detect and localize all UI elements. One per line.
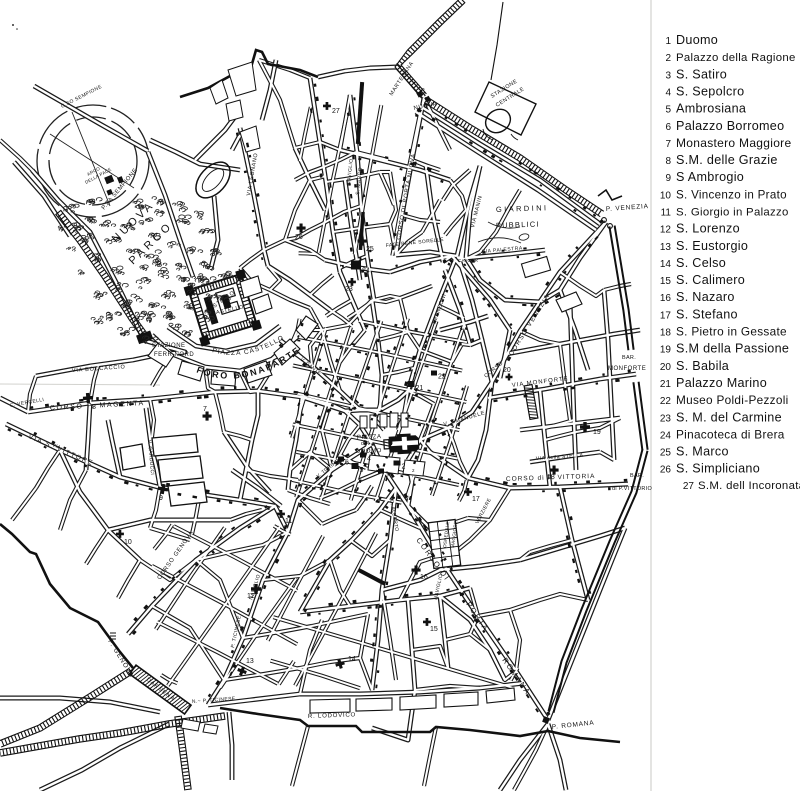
svg-text:S. Babila: S. Babila [676,359,729,373]
svg-text:S. Vincenzo in Prato: S. Vincenzo in Prato [676,188,787,201]
svg-text:S. Marco: S. Marco [676,445,729,459]
svg-text:15: 15 [430,626,438,633]
svg-text:S. Simpliciano: S. Simpliciano [676,462,760,476]
svg-text:25: 25 [660,448,672,459]
svg-text:20: 20 [660,362,672,373]
svg-text:MONFORTE: MONFORTE [608,366,646,372]
svg-text:7: 7 [203,406,207,413]
svg-text:7: 7 [665,139,671,150]
svg-text:23: 23 [345,286,353,293]
svg-text:del: del [361,441,369,447]
svg-text:S. Sepolcro: S. Sepolcro [676,84,744,98]
svg-text:6: 6 [345,460,349,467]
svg-text:1: 1 [665,36,671,47]
svg-text:S. Celso: S. Celso [676,256,726,270]
svg-text:11: 11 [285,518,292,525]
svg-text:6: 6 [665,122,671,133]
svg-text:S.M. delle Grazie: S.M. delle Grazie [676,153,778,167]
svg-text:26: 26 [660,465,672,476]
svg-text:PIAZZA: PIAZZA [357,434,382,441]
svg-text:S. Lorenzo: S. Lorenzo [676,222,740,236]
svg-text:Palazzo Borromeo: Palazzo Borromeo [676,119,784,133]
svg-text:S.M della Passione: S.M della Passione [676,342,789,356]
svg-text:FERR NORD: FERR NORD [154,352,194,358]
svg-text:10: 10 [660,190,672,201]
svg-text:BAR.: BAR. [630,473,644,479]
svg-text:11: 11 [661,208,672,219]
svg-text:24: 24 [660,430,672,441]
svg-text:23: 23 [660,413,672,424]
svg-text:Palazzo della Ragione: Palazzo della Ragione [676,52,796,64]
svg-text:S Ambrogio: S Ambrogio [676,170,744,184]
svg-text:S.M. dell Incoronata: S.M. dell Incoronata [698,480,800,492]
svg-text:P: P [421,88,425,94]
svg-text:S. Satiro: S. Satiro [676,67,727,81]
svg-text:Monastero Maggiore: Monastero Maggiore [676,136,791,150]
svg-text:Ambrosiana: Ambrosiana [676,102,746,116]
svg-text:17: 17 [472,496,480,503]
svg-text:2: 2 [412,468,415,473]
svg-text:19: 19 [660,345,672,356]
svg-text:Pinacoteca di Brera: Pinacoteca di Brera [676,427,785,441]
svg-text:14: 14 [660,259,672,270]
svg-text:26: 26 [295,234,303,241]
svg-text:3: 3 [665,70,671,81]
svg-text:BAR.: BAR. [622,355,636,361]
svg-text:S. Giorgio in Palazzo: S. Giorgio in Palazzo [676,207,789,219]
svg-text:S. Calimero: S. Calimero [676,273,745,287]
svg-text:14: 14 [348,656,356,663]
svg-text:PUBBLICI: PUBBLICI [496,219,540,230]
svg-text:15: 15 [660,276,672,287]
svg-text:22: 22 [438,374,446,381]
svg-text:2: 2 [665,53,671,64]
svg-text:S. Pietro in Gessate: S. Pietro in Gessate [676,325,787,339]
svg-text:S. M. del Carmine: S. M. del Carmine [676,410,782,424]
svg-text:12: 12 [660,225,672,236]
svg-text:DUOMO: DUOMO [356,448,382,455]
svg-text:27: 27 [332,108,340,115]
svg-text:18: 18 [660,328,672,339]
svg-text:S. Eustorgio: S. Eustorgio [676,239,748,253]
svg-text:STAZIONE: STAZIONE [152,343,186,349]
svg-text:5: 5 [665,105,671,116]
svg-text:9: 9 [159,495,163,502]
svg-text:Museo Poldi-Pezzoli: Museo Poldi-Pezzoli [676,393,789,407]
svg-text:16: 16 [420,574,428,581]
svg-text:di P.VITTORIO: di P.VITTORIO [612,486,652,492]
svg-text:9: 9 [665,173,671,184]
svg-text:19: 19 [593,429,601,436]
svg-text:2: 2 [402,464,406,471]
svg-text:8: 8 [665,156,671,167]
svg-text:4: 4 [665,87,671,98]
svg-text:13: 13 [246,658,254,665]
svg-text:GIARDINI: GIARDINI [496,203,549,214]
svg-text:4: 4 [367,456,371,463]
svg-text:S. Stefano: S. Stefano [676,307,738,321]
svg-text:16: 16 [660,293,672,304]
svg-text:22: 22 [660,396,672,407]
svg-text:21: 21 [660,379,672,390]
svg-text:S. Nazaro: S. Nazaro [676,290,735,304]
svg-text:10: 10 [124,539,132,546]
svg-text:Palazzo Marino: Palazzo Marino [676,376,767,390]
svg-text:17: 17 [660,310,672,321]
svg-text:Duomo: Duomo [676,33,718,47]
svg-text:CAVOUR: CAVOUR [458,258,479,263]
svg-text:27: 27 [683,481,695,492]
svg-text:20: 20 [503,367,511,374]
svg-text:13: 13 [660,242,672,253]
